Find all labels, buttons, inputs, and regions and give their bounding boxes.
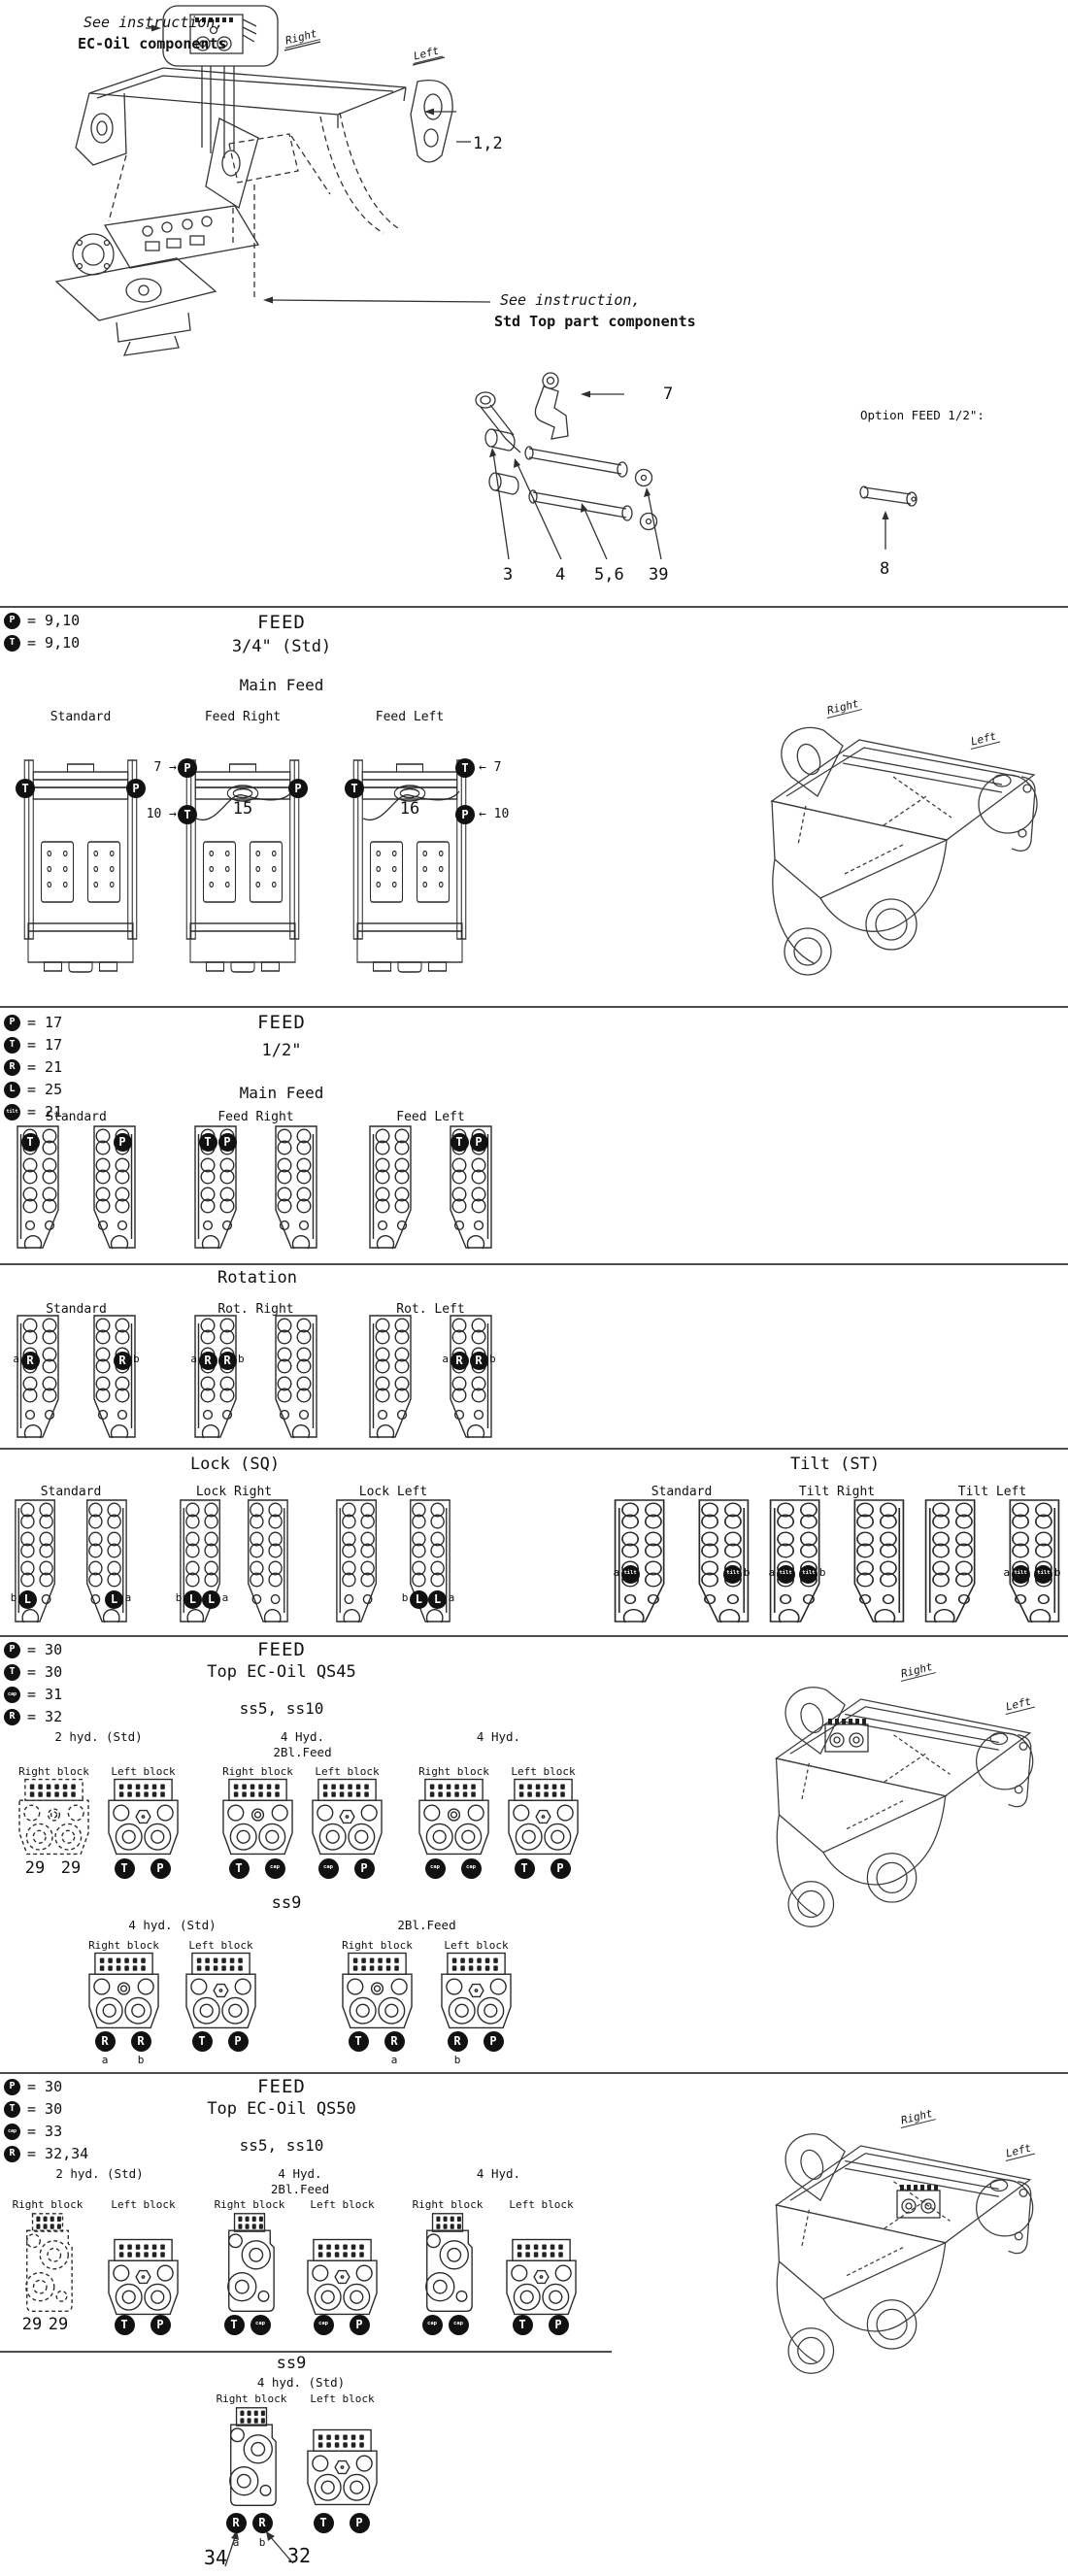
port-marker-T: T — [115, 2315, 135, 2335]
ec-oil-instruction-note-line1: See instruction, — [83, 14, 224, 31]
variant-label: 4 Hyd. — [426, 1729, 572, 1744]
adapter-plate-drawing — [922, 1498, 983, 1629]
variant-label: 2 hyd. (Std) — [26, 1729, 172, 1744]
column-label: Feed Right — [165, 710, 320, 724]
coupler-drawing — [748, 680, 1068, 981]
port-marker-tilt: tilt — [723, 1565, 742, 1584]
port-letter: a — [183, 1353, 197, 1365]
port-marker-T: T — [21, 1133, 40, 1152]
port-marker-cap: cap — [425, 1858, 446, 1879]
port-marker-T: T — [192, 2031, 213, 2052]
port-letter: a — [228, 2536, 244, 2549]
section-title: FEED — [184, 1639, 379, 1660]
group-heading-ss5-ss10: ss5, ss10 — [184, 2136, 379, 2155]
legend-value: = 30 — [27, 2100, 62, 2118]
port-marker-tilt: tilt — [621, 1565, 640, 1584]
valve-block-drawing — [184, 1951, 257, 2030]
section-divider — [0, 1448, 1068, 1450]
part-number: 29 — [56, 1858, 85, 1878]
part-number: 29 — [20, 1858, 50, 1878]
port-letter: a — [97, 2054, 113, 2066]
legend-feed34: P= 9,10T= 9,10 — [4, 612, 80, 652]
variant-label: 4 Hyd. — [230, 1729, 376, 1744]
port-marker-cap: cap — [314, 2315, 334, 2335]
port-marker-R: R — [384, 2031, 405, 2052]
port-marker-T: T — [4, 1037, 20, 1054]
port-marker-R: R — [226, 2513, 247, 2533]
port-marker-P: P — [150, 1858, 171, 1879]
adapter-plate-drawing — [269, 1124, 319, 1255]
bracket-callout: ← 10 — [479, 807, 519, 821]
port-marker-R: R — [252, 2513, 273, 2533]
coupler-drawing — [752, 2088, 1063, 2379]
valve-block-drawing — [107, 1777, 180, 1857]
legend-value: = 17 — [27, 1014, 62, 1031]
port-letter: a — [995, 1566, 1010, 1579]
bracket-callout: 10 → — [140, 807, 177, 821]
group-heading-ss5-ss10: ss5, ss10 — [184, 1699, 379, 1718]
legend-item: P= 30 — [4, 2078, 88, 2095]
variant-label: 2Bl.Feed — [227, 2182, 373, 2196]
variant-label: 4 hyd. (Std) — [100, 1918, 246, 1932]
section-subtitle: 3/4" (Std) — [184, 637, 379, 656]
legend-item: P= 17 — [4, 1014, 62, 1031]
port-marker-T: T — [314, 2513, 334, 2533]
section-divider — [0, 2351, 612, 2353]
port-marker-T: T — [115, 1858, 135, 1879]
port-marker-P: P — [4, 2079, 20, 2095]
port-marker-L: L — [428, 1590, 447, 1609]
port-marker-T: T — [4, 1664, 20, 1681]
bracket-callout: ← 7 — [479, 760, 519, 775]
group-heading-ss9: ss9 — [189, 1893, 384, 1913]
variant-label: 2Bl.Feed — [354, 1918, 500, 1932]
port-marker-T: T — [199, 1133, 217, 1152]
adapter-plate-drawing — [612, 1498, 672, 1629]
column-label: Standard — [3, 710, 158, 724]
legend-item: cap= 33 — [4, 2123, 88, 2140]
adapter-plate-drawing — [269, 1314, 319, 1445]
port-marker-T: T — [345, 779, 364, 798]
port-letter: b — [489, 1353, 504, 1365]
port-letter: a — [222, 1591, 237, 1604]
port-marker-T: T — [229, 1858, 250, 1879]
section-title: FEED — [184, 2076, 379, 2097]
port-marker-R: R — [199, 1352, 217, 1370]
port-letter: b — [133, 2054, 149, 2066]
port-letter: b — [167, 1591, 182, 1604]
adapter-plate-drawing — [334, 1498, 383, 1629]
variant-label: 4 Hyd. — [227, 2166, 373, 2181]
valve-block-drawing — [306, 2237, 379, 2317]
column-label: Standard — [609, 1485, 754, 1499]
port-marker-cap: cap — [461, 1858, 482, 1879]
adapter-plate-drawing — [767, 1498, 827, 1629]
port-marker-P: P — [218, 1133, 237, 1152]
port-marker-P: P — [150, 2315, 171, 2335]
port-marker-P: P — [114, 1133, 132, 1152]
legend-value: = 33 — [27, 2123, 62, 2140]
port-marker-T: T — [4, 2101, 20, 2118]
port-letter: b — [393, 1591, 408, 1604]
valve-block-drawing — [87, 1951, 160, 2030]
legend-value: = 30 — [27, 1663, 62, 1681]
port-letter: b — [238, 1353, 252, 1365]
valve-block-drawing — [107, 2237, 180, 2317]
legend-qs45: P= 30T= 30cap= 31R= 32 — [4, 1641, 62, 1725]
port-letter: b — [1054, 1566, 1068, 1579]
feed-bracket-drawing — [22, 733, 139, 978]
port-marker-P: P — [470, 1133, 488, 1152]
port-marker-P: P — [178, 758, 197, 778]
port-marker-T: T — [4, 635, 20, 652]
std-top-instruction-note-line1: See instruction, — [500, 291, 641, 309]
column-label: Standard — [4, 1110, 150, 1124]
section-subtitle: Top EC-Oil QS45 — [136, 1662, 427, 1682]
legend-item: T= 30 — [4, 1663, 62, 1681]
port-marker-R: R — [451, 1352, 469, 1370]
legend-qs50: P= 30T= 30cap= 33R= 32,34 — [4, 2078, 88, 2162]
group-heading: Tilt (ST) — [728, 1455, 942, 1474]
adapter-plate-drawing — [192, 1314, 243, 1445]
legend-value: = 21 — [27, 1058, 62, 1076]
variant-label: 2Bl.Feed — [230, 1745, 376, 1759]
port-marker-P: P — [350, 2513, 370, 2533]
feed-bracket-drawing — [351, 733, 468, 978]
variant-label: 4 hyd. (Std) — [228, 2375, 374, 2390]
legend-value: = 32 — [27, 1708, 62, 1725]
valve-block-drawing — [505, 2237, 578, 2317]
feed-bracket-drawing — [184, 733, 301, 978]
port-marker-P: P — [551, 1858, 571, 1879]
legend-item: P= 9,10 — [4, 612, 80, 629]
variant-label: 4 Hyd. — [426, 2166, 572, 2181]
port-marker-L: L — [410, 1590, 428, 1609]
valve-block-drawing — [221, 1777, 294, 1857]
legend-value: = 30 — [27, 1641, 62, 1658]
callout-8: 8 — [880, 559, 889, 579]
port-marker-cap: cap — [250, 2315, 271, 2335]
port-letter: b — [819, 1566, 834, 1579]
port-marker-R: R — [131, 2031, 151, 2052]
ec-oil-block-overlay — [821, 1715, 876, 1757]
section-divider — [0, 1263, 1068, 1265]
port-marker-L: L — [202, 1590, 220, 1609]
valve-block-drawing — [417, 1777, 490, 1857]
port-letter: a — [5, 1353, 19, 1365]
column-label: Lock Right — [161, 1485, 307, 1499]
legend-value: = 9,10 — [27, 634, 80, 652]
valve-block-drawing — [341, 1951, 414, 2030]
port-marker-tilt: tilt — [799, 1565, 818, 1584]
column-label: Tilt Left — [919, 1485, 1065, 1499]
group-heading-ss9: ss9 — [194, 2354, 388, 2373]
adapter-plate-drawing — [87, 1314, 138, 1445]
section-subtitle: 1/2" — [184, 1041, 379, 1060]
port-marker-T: T — [349, 2031, 369, 2052]
legend-item: R= 32,34 — [4, 2145, 88, 2162]
port-letter: b — [450, 2054, 465, 2066]
valve-block-drawing — [19, 2210, 76, 2317]
legend-value: = 30 — [27, 2078, 62, 2095]
group-heading: Rotation — [150, 1268, 364, 1288]
adapter-plate-drawing — [691, 1498, 751, 1629]
legend-item: T= 17 — [4, 1036, 62, 1054]
port-marker-R: R — [448, 2031, 468, 2052]
port-marker-T: T — [224, 2315, 245, 2335]
port-marker-tilt: tilt — [1034, 1565, 1052, 1584]
variant-label: 2 hyd. (Std) — [27, 2166, 173, 2181]
column-label: Feed Left — [358, 1110, 504, 1124]
legend-item: T= 30 — [4, 2100, 88, 2118]
legend-value: = 9,10 — [27, 612, 80, 629]
port-letter: a — [434, 1353, 449, 1365]
section-divider — [0, 1006, 1068, 1008]
legend-item: T= 9,10 — [4, 634, 80, 652]
port-marker-R: R — [4, 1709, 20, 1725]
port-marker-R: R — [218, 1352, 237, 1370]
port-marker-tilt: tilt — [777, 1565, 795, 1584]
column-label: Feed Right — [184, 1110, 329, 1124]
port-letter: b — [2, 1591, 17, 1604]
callout-5-6: 5,6 — [594, 565, 624, 585]
column-label: Standard — [0, 1485, 144, 1499]
group-heading: Lock (SQ) — [128, 1455, 342, 1474]
port-marker-cap: cap — [265, 1858, 285, 1879]
adapter-plate-drawing — [15, 1314, 65, 1445]
callout-3: 3 — [503, 565, 513, 585]
port-letter: a — [605, 1566, 619, 1579]
port-marker-P: P — [455, 805, 475, 824]
legend-value: = 32,34 — [27, 2145, 88, 2162]
std-top-instruction-note-line2: Std Top part components — [494, 313, 696, 330]
section-divider — [0, 2072, 1068, 2074]
port-marker-P: P — [4, 1015, 20, 1031]
port-marker-L: L — [18, 1590, 37, 1609]
part-number: 29 — [17, 2315, 47, 2334]
adapter-plate-drawing — [847, 1498, 907, 1629]
port-marker-R: R — [95, 2031, 116, 2052]
section-divider — [0, 606, 1068, 608]
valve-block-drawing — [419, 2210, 476, 2317]
block-label: Left block — [100, 2198, 187, 2211]
adapter-plate-drawing — [367, 1124, 417, 1255]
port-marker-cap: cap — [4, 1687, 20, 1703]
port-marker-P: P — [4, 1642, 20, 1658]
ec-oil-block-overlay — [893, 2181, 948, 2224]
legend-value: = 17 — [27, 1036, 62, 1054]
ec-oil-instruction-note-line2: EC-Oil components — [78, 35, 227, 52]
port-marker-T: T — [455, 758, 475, 778]
section-subtitle: Top EC-Oil QS50 — [136, 2099, 427, 2119]
section-title: FEED — [184, 1012, 379, 1033]
port-letter: a — [449, 1591, 463, 1604]
callout-1-2: 1,2 — [473, 134, 503, 153]
port-marker-T: T — [16, 779, 35, 798]
legend-value: = 31 — [27, 1686, 62, 1703]
port-marker-P: P — [4, 613, 20, 629]
port-marker-P: P — [126, 779, 146, 798]
legend-item: P= 30 — [4, 1641, 62, 1658]
port-marker-P: P — [484, 2031, 504, 2052]
section-divider — [0, 1635, 1068, 1637]
legend-item: R= 21 — [4, 1058, 62, 1076]
port-letter: a — [760, 1566, 775, 1579]
option-feed-note: Option FEED 1/2": — [860, 408, 985, 422]
port-marker-L: L — [4, 1082, 20, 1098]
port-marker-P: P — [354, 1858, 375, 1879]
block-label: Left block — [498, 2198, 585, 2211]
port-letter: b — [254, 2536, 270, 2549]
adapter-plate-drawing — [1002, 1498, 1062, 1629]
port-marker-R: R — [470, 1352, 488, 1370]
adapter-plate-drawing — [404, 1498, 452, 1629]
part-number: 29 — [44, 2315, 73, 2334]
port-marker-cap: cap — [422, 2315, 443, 2335]
valve-block-drawing — [221, 2210, 278, 2317]
callout-39: 39 — [649, 565, 668, 585]
legend-value: = 25 — [27, 1081, 62, 1098]
callout-4: 4 — [555, 565, 565, 585]
part-number: 16 — [361, 799, 458, 819]
legend-feed12: P= 17T= 17R= 21L= 25tilt= 21 — [4, 1014, 62, 1121]
valve-block-drawing — [507, 1777, 580, 1857]
adapter-plate-drawing — [242, 1498, 290, 1629]
port-marker-P: P — [549, 2315, 569, 2335]
group-heading: Main Feed — [184, 676, 379, 694]
port-marker-tilt: tilt — [1012, 1565, 1030, 1584]
block-label: Left block — [299, 2198, 386, 2211]
port-marker-cap: cap — [4, 2124, 20, 2140]
port-marker-R: R — [4, 1059, 20, 1076]
port-marker-cap: cap — [449, 2315, 469, 2335]
callout-7: 7 — [663, 385, 673, 404]
port-marker-L: L — [184, 1590, 202, 1609]
valve-block-drawing — [306, 2427, 379, 2507]
valve-block-drawing — [311, 1777, 384, 1857]
coupler-drawing — [752, 1641, 1063, 1932]
port-marker-R: R — [21, 1352, 40, 1370]
port-marker-T: T — [515, 1858, 535, 1879]
valve-block-drawing — [223, 2404, 280, 2511]
legend-item: L= 25 — [4, 1081, 62, 1098]
port-marker-R: R — [4, 2146, 20, 2162]
legend-item: R= 32 — [4, 1708, 62, 1725]
port-marker-P: P — [228, 2031, 249, 2052]
section-title: FEED — [184, 612, 379, 633]
group-heading: Main Feed — [175, 1084, 388, 1102]
valve-block-drawing — [17, 1777, 90, 1857]
adapter-plate-drawing — [178, 1498, 226, 1629]
port-letter: b — [744, 1566, 758, 1579]
adapter-plate-drawing — [13, 1498, 61, 1629]
hydraulic-feed-instruction-page: See instruction, EC-Oil components Right… — [0, 0, 1068, 2576]
port-marker-L: L — [105, 1590, 123, 1609]
legend-item: cap= 31 — [4, 1686, 62, 1703]
column-label: Feed Left — [332, 710, 487, 724]
port-marker-T: T — [513, 2315, 533, 2335]
port-marker-R: R — [114, 1352, 132, 1370]
column-label: Lock Left — [320, 1485, 466, 1499]
column-label: Tilt Right — [764, 1485, 910, 1499]
part-number: 15 — [194, 799, 291, 819]
block-label: Left block — [299, 2392, 386, 2405]
port-letter: a — [386, 2054, 402, 2066]
valve-block-drawing — [440, 1951, 513, 2030]
adapter-plate-drawing — [367, 1314, 417, 1445]
port-marker-P: P — [288, 779, 308, 798]
port-letter: b — [133, 1353, 148, 1365]
port-marker-cap: cap — [318, 1858, 339, 1879]
adapter-plate-drawing — [444, 1314, 494, 1445]
bracket-callout: 7 → — [140, 760, 177, 775]
port-marker-T: T — [451, 1133, 469, 1152]
port-letter: a — [125, 1591, 140, 1604]
port-marker-P: P — [350, 2315, 370, 2335]
adapter-plate-drawing — [81, 1498, 129, 1629]
